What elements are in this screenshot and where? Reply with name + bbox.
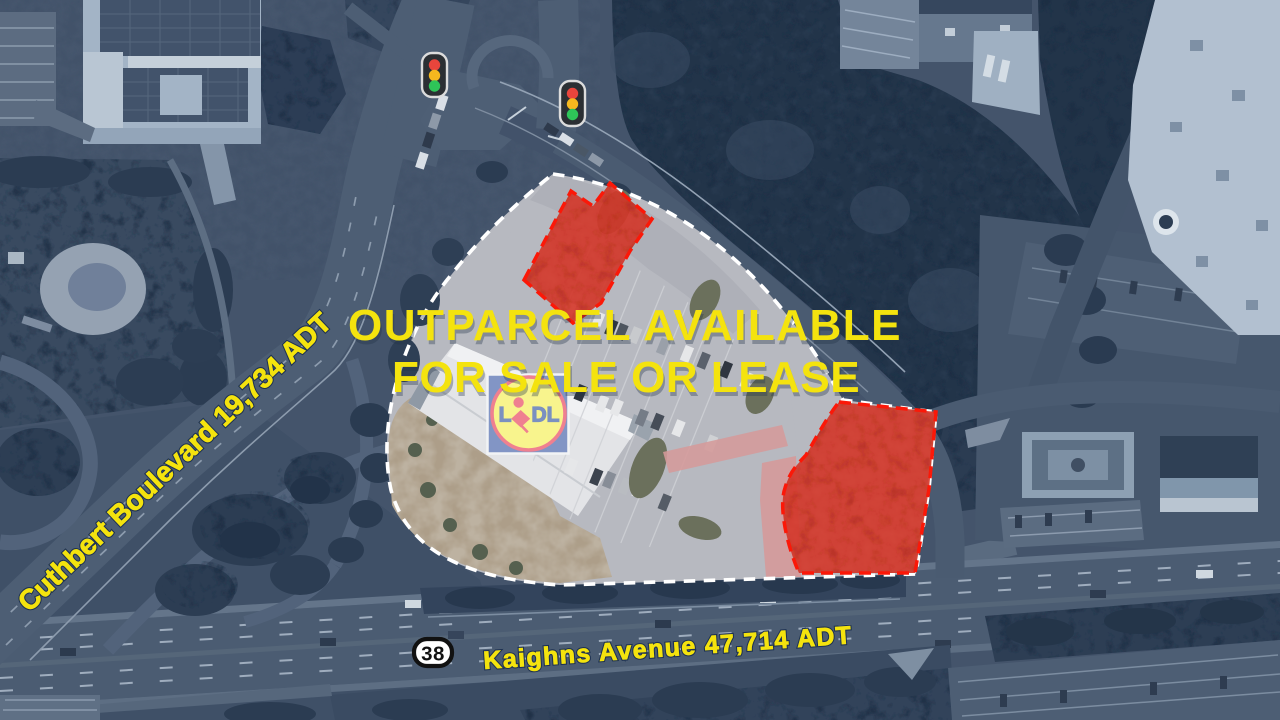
svg-text:L: L [499, 404, 512, 427]
svg-text:DL: DL [532, 404, 560, 427]
svg-text:FOR SALE OR LEASE: FOR SALE OR LEASE [392, 353, 860, 402]
svg-text:38: 38 [421, 643, 445, 666]
svg-text:OUTPARCEL AVAILABLE: OUTPARCEL AVAILABLE [348, 301, 902, 350]
